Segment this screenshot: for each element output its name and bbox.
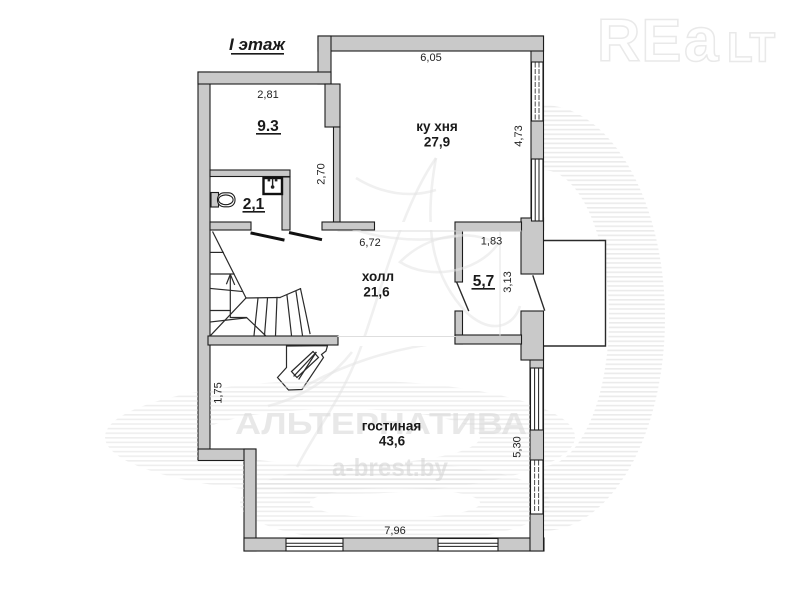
svg-text:4,73: 4,73	[513, 125, 525, 146]
svg-text:3,13: 3,13	[502, 271, 514, 292]
svg-text:1,75: 1,75	[213, 382, 225, 403]
svg-text:I этаж: I этаж	[229, 35, 286, 54]
svg-text:27,9: 27,9	[424, 135, 450, 150]
svg-text:ку хня: ку хня	[416, 119, 458, 134]
svg-text:a-brest.by: a-brest.by	[332, 454, 448, 482]
svg-text:43,6: 43,6	[379, 434, 406, 449]
svg-text:21,6: 21,6	[363, 285, 390, 300]
svg-text:6,05: 6,05	[420, 52, 441, 64]
svg-text:a: a	[684, 6, 719, 75]
svg-text:5,30: 5,30	[512, 436, 524, 457]
svg-text:5,7: 5,7	[473, 273, 495, 290]
svg-text:гостиная: гостиная	[362, 419, 421, 434]
svg-text:LT: LT	[727, 24, 776, 71]
svg-text:2,1: 2,1	[243, 196, 265, 213]
svg-text:6,72: 6,72	[359, 237, 380, 249]
svg-text:7,96: 7,96	[384, 525, 405, 537]
svg-text:2,81: 2,81	[257, 89, 278, 101]
svg-text:9.3: 9.3	[257, 118, 279, 135]
svg-text:2,70: 2,70	[316, 163, 328, 184]
svg-text:холл: холл	[362, 269, 394, 284]
svg-text:1,83: 1,83	[481, 236, 502, 248]
svg-text:RE: RE	[597, 7, 682, 74]
